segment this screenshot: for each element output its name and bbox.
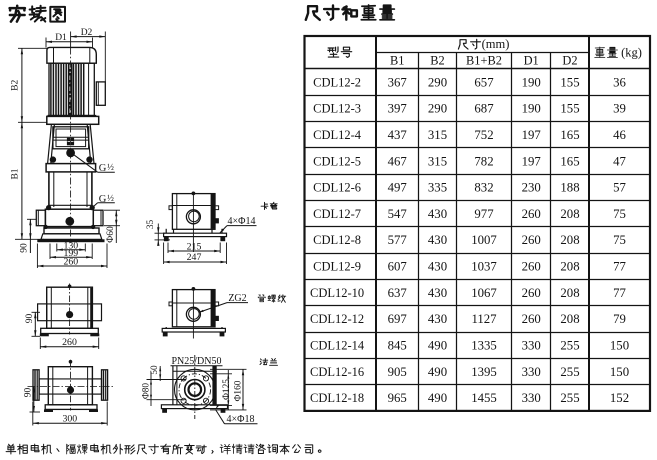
svg-text:315: 315 xyxy=(428,128,447,142)
svg-text:782: 782 xyxy=(474,154,493,168)
svg-text:490: 490 xyxy=(428,365,447,379)
svg-text:290: 290 xyxy=(428,76,447,90)
svg-text:397: 397 xyxy=(388,102,408,116)
svg-text:260: 260 xyxy=(62,337,77,348)
svg-text:77: 77 xyxy=(613,260,626,274)
svg-text:330: 330 xyxy=(522,391,541,405)
svg-text:190: 190 xyxy=(522,76,541,90)
svg-text:39: 39 xyxy=(613,102,626,116)
svg-text:47: 47 xyxy=(613,154,626,168)
svg-text:1335: 1335 xyxy=(471,338,497,352)
svg-text:CDL12-6: CDL12-6 xyxy=(313,181,361,195)
svg-text:197: 197 xyxy=(522,128,542,142)
svg-text:497: 497 xyxy=(388,181,408,195)
svg-text:CDL12-3: CDL12-3 xyxy=(313,102,361,116)
svg-text:35: 35 xyxy=(146,220,156,230)
svg-text:PN25/DN50: PN25/DN50 xyxy=(171,356,221,367)
svg-text:46: 46 xyxy=(613,128,626,142)
svg-text:CDL12-8: CDL12-8 xyxy=(313,233,361,247)
svg-text:165: 165 xyxy=(560,154,579,168)
svg-text:965: 965 xyxy=(388,391,407,405)
svg-text:ZG2: ZG2 xyxy=(228,293,246,304)
svg-text:832: 832 xyxy=(474,181,493,195)
svg-text:547: 547 xyxy=(388,207,408,221)
svg-text:255: 255 xyxy=(560,338,579,352)
svg-text:G: G xyxy=(99,163,107,174)
svg-text:752: 752 xyxy=(474,128,493,142)
svg-text:637: 637 xyxy=(388,286,408,300)
svg-text:(kg): (kg) xyxy=(621,46,642,60)
svg-text:150: 150 xyxy=(610,338,629,352)
svg-text:D1: D1 xyxy=(524,54,539,68)
svg-text:255: 255 xyxy=(560,365,579,379)
svg-text:Φ160: Φ160 xyxy=(234,380,244,401)
svg-text:430: 430 xyxy=(428,286,447,300)
svg-text:79: 79 xyxy=(613,312,626,326)
svg-text:90: 90 xyxy=(25,314,35,324)
svg-text:190: 190 xyxy=(522,102,541,116)
svg-text:577: 577 xyxy=(388,233,408,247)
svg-text:300: 300 xyxy=(62,414,77,425)
svg-text:260: 260 xyxy=(522,286,541,300)
svg-text:1455: 1455 xyxy=(471,391,497,405)
svg-text:CDL12-9: CDL12-9 xyxy=(313,260,361,274)
svg-text:Φ60: Φ60 xyxy=(106,226,116,243)
svg-text:490: 490 xyxy=(428,338,447,352)
svg-text:208: 208 xyxy=(560,233,579,247)
svg-text:490: 490 xyxy=(428,391,447,405)
svg-text:430: 430 xyxy=(428,233,447,247)
svg-text:188: 188 xyxy=(560,181,579,195)
svg-text:315: 315 xyxy=(428,154,447,168)
svg-text:687: 687 xyxy=(474,102,494,116)
svg-text:330: 330 xyxy=(522,338,541,352)
svg-text:430: 430 xyxy=(428,207,447,221)
svg-text:75: 75 xyxy=(613,207,626,221)
svg-text:CDL12-7: CDL12-7 xyxy=(313,207,361,221)
svg-text:(mm): (mm) xyxy=(482,37,510,51)
svg-text:330: 330 xyxy=(522,365,541,379)
svg-text:4×Φ18: 4×Φ18 xyxy=(227,414,255,425)
svg-text:430: 430 xyxy=(428,260,447,274)
svg-text:57: 57 xyxy=(613,181,626,195)
svg-text:230: 230 xyxy=(522,181,541,195)
svg-text:197: 197 xyxy=(522,154,542,168)
svg-text:B1: B1 xyxy=(11,168,21,179)
svg-text:152: 152 xyxy=(610,391,629,405)
svg-text:208: 208 xyxy=(560,286,579,300)
svg-text:Φ80: Φ80 xyxy=(141,383,151,399)
svg-text:260: 260 xyxy=(522,312,541,326)
svg-text:155: 155 xyxy=(560,76,579,90)
svg-text:255: 255 xyxy=(560,391,579,405)
svg-text:697: 697 xyxy=(388,312,408,326)
svg-text:430: 430 xyxy=(428,312,447,326)
svg-text:36: 36 xyxy=(613,76,626,90)
svg-text:CDL12-12: CDL12-12 xyxy=(310,312,364,326)
svg-text:657: 657 xyxy=(474,76,494,90)
svg-text:607: 607 xyxy=(388,260,408,274)
svg-text:CDL12-14: CDL12-14 xyxy=(310,338,365,352)
svg-text:D1: D1 xyxy=(55,33,67,43)
svg-text:905: 905 xyxy=(388,365,407,379)
svg-text:77: 77 xyxy=(613,286,626,300)
svg-text:CDL12-4: CDL12-4 xyxy=(313,128,362,142)
svg-text:260: 260 xyxy=(522,207,541,221)
svg-text:335: 335 xyxy=(428,181,447,195)
svg-text:90: 90 xyxy=(20,243,30,253)
svg-text:CDL12-18: CDL12-18 xyxy=(310,391,364,405)
svg-text:260: 260 xyxy=(63,257,78,268)
svg-text:1395: 1395 xyxy=(471,365,497,379)
svg-text:1007: 1007 xyxy=(471,233,497,247)
svg-text:1037: 1037 xyxy=(471,260,497,274)
svg-text:CDL12-5: CDL12-5 xyxy=(313,154,361,168)
svg-text:½: ½ xyxy=(107,193,114,203)
svg-text:CDL12-10: CDL12-10 xyxy=(310,286,364,300)
svg-text:260: 260 xyxy=(522,260,541,274)
svg-text:CDL12-2: CDL12-2 xyxy=(313,76,361,90)
svg-text:½: ½ xyxy=(107,162,114,172)
svg-text:367: 367 xyxy=(388,76,408,90)
svg-text:B1: B1 xyxy=(390,54,404,68)
svg-text:208: 208 xyxy=(560,260,579,274)
svg-text:D2: D2 xyxy=(562,54,577,68)
svg-text:Φ125: Φ125 xyxy=(222,379,232,400)
svg-text:208: 208 xyxy=(560,207,579,221)
svg-text:165: 165 xyxy=(560,128,579,142)
svg-text:4×Φ14: 4×Φ14 xyxy=(228,216,256,227)
svg-text:260: 260 xyxy=(522,233,541,247)
svg-text:845: 845 xyxy=(388,338,407,352)
svg-text:B2: B2 xyxy=(430,54,444,68)
svg-text:437: 437 xyxy=(388,128,408,142)
svg-text:1127: 1127 xyxy=(471,312,497,326)
svg-text:977: 977 xyxy=(474,207,494,221)
svg-text:290: 290 xyxy=(428,102,447,116)
svg-text:215: 215 xyxy=(187,241,202,252)
svg-text:155: 155 xyxy=(560,102,579,116)
svg-text:G: G xyxy=(99,194,107,205)
svg-text:B2: B2 xyxy=(11,80,21,91)
svg-text:1067: 1067 xyxy=(471,286,497,300)
svg-text:247: 247 xyxy=(187,252,202,263)
svg-text:B1+B2: B1+B2 xyxy=(466,54,502,68)
svg-text:75: 75 xyxy=(613,233,626,247)
svg-text:208: 208 xyxy=(560,312,579,326)
svg-text:CDL12-16: CDL12-16 xyxy=(310,365,364,379)
svg-text:467: 467 xyxy=(388,154,408,168)
svg-text:D2: D2 xyxy=(81,28,93,38)
svg-text:90: 90 xyxy=(24,388,34,398)
svg-text:150: 150 xyxy=(610,365,629,379)
